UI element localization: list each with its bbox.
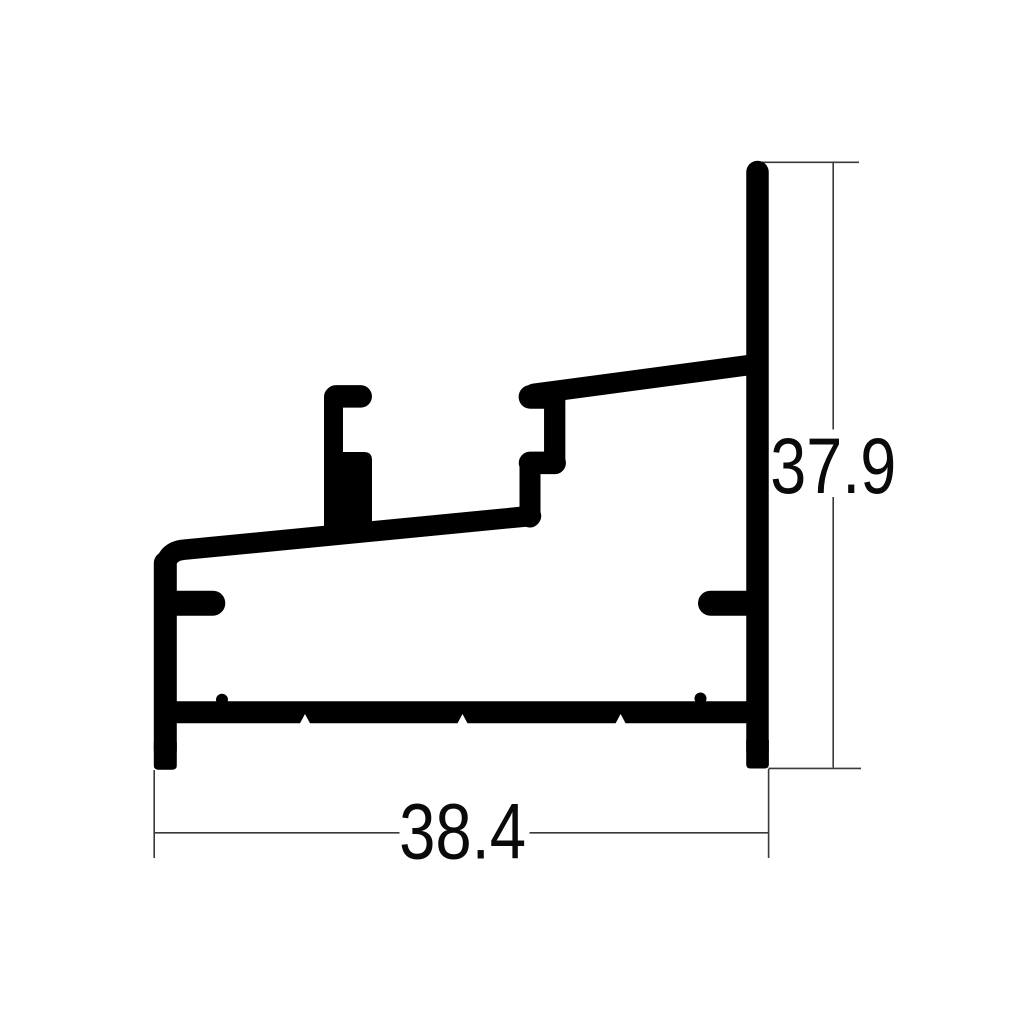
svg-text:38.4: 38.4 [399,787,526,876]
svg-text:37.9: 37.9 [770,421,896,510]
